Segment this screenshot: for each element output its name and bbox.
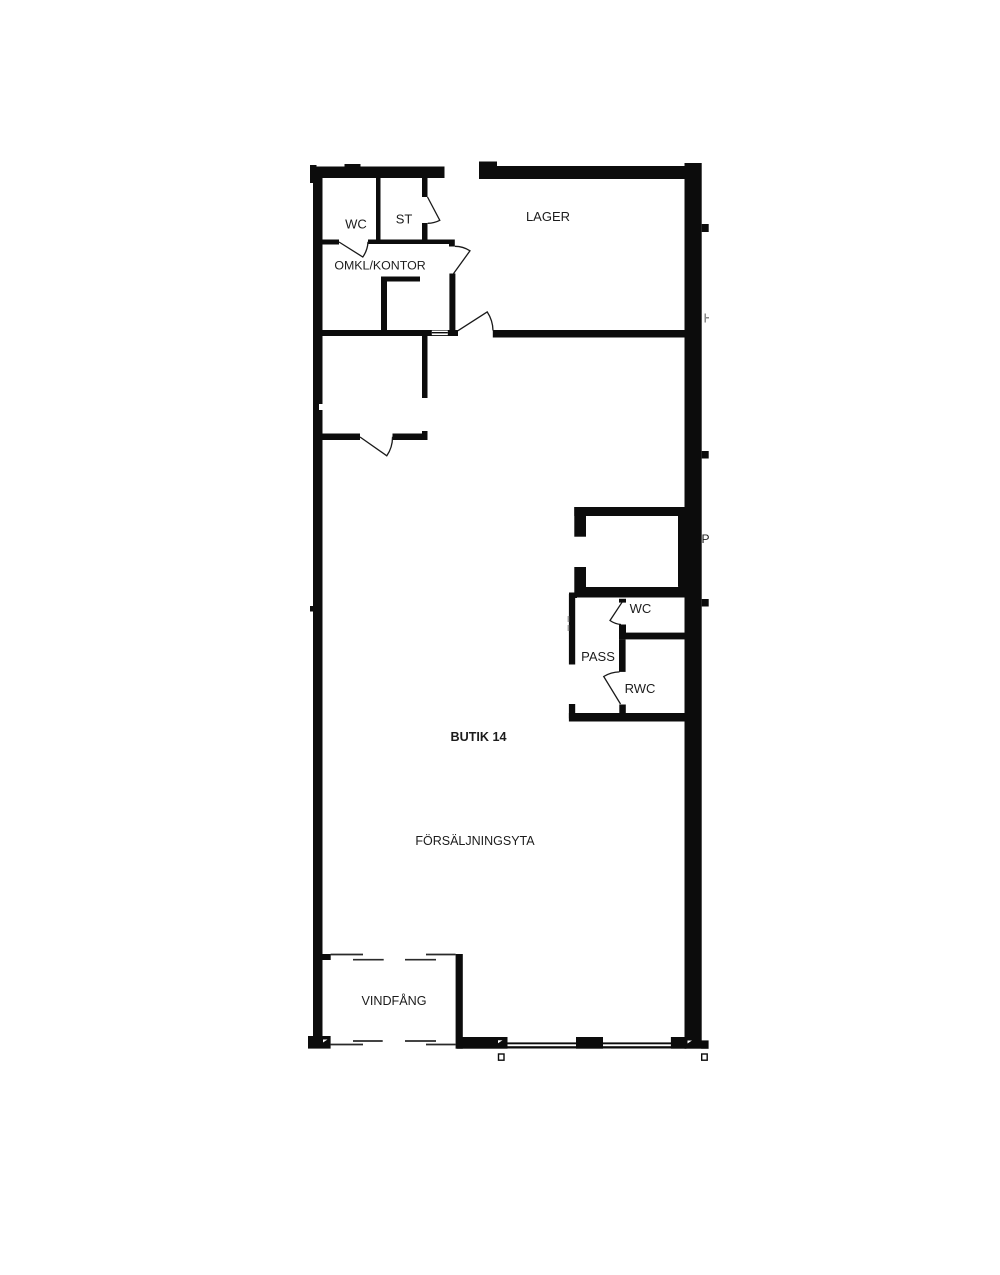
svg-text:P: P — [702, 532, 710, 546]
svg-text:LAGER: LAGER — [526, 209, 570, 224]
svg-text:VINDFÅNG: VINDFÅNG — [361, 993, 426, 1008]
svg-text:RWC: RWC — [625, 681, 656, 696]
svg-text:FÖRSÄLJNINGSYTA: FÖRSÄLJNINGSYTA — [415, 834, 535, 848]
svg-text:WC: WC — [345, 217, 367, 232]
svg-text:PASS: PASS — [581, 649, 615, 664]
svg-text:BUTIK 14: BUTIK 14 — [451, 730, 507, 744]
svg-text:WC: WC — [630, 601, 652, 616]
svg-text:ST: ST — [396, 212, 413, 227]
svg-text:OMKL/KONTOR: OMKL/KONTOR — [334, 259, 425, 273]
